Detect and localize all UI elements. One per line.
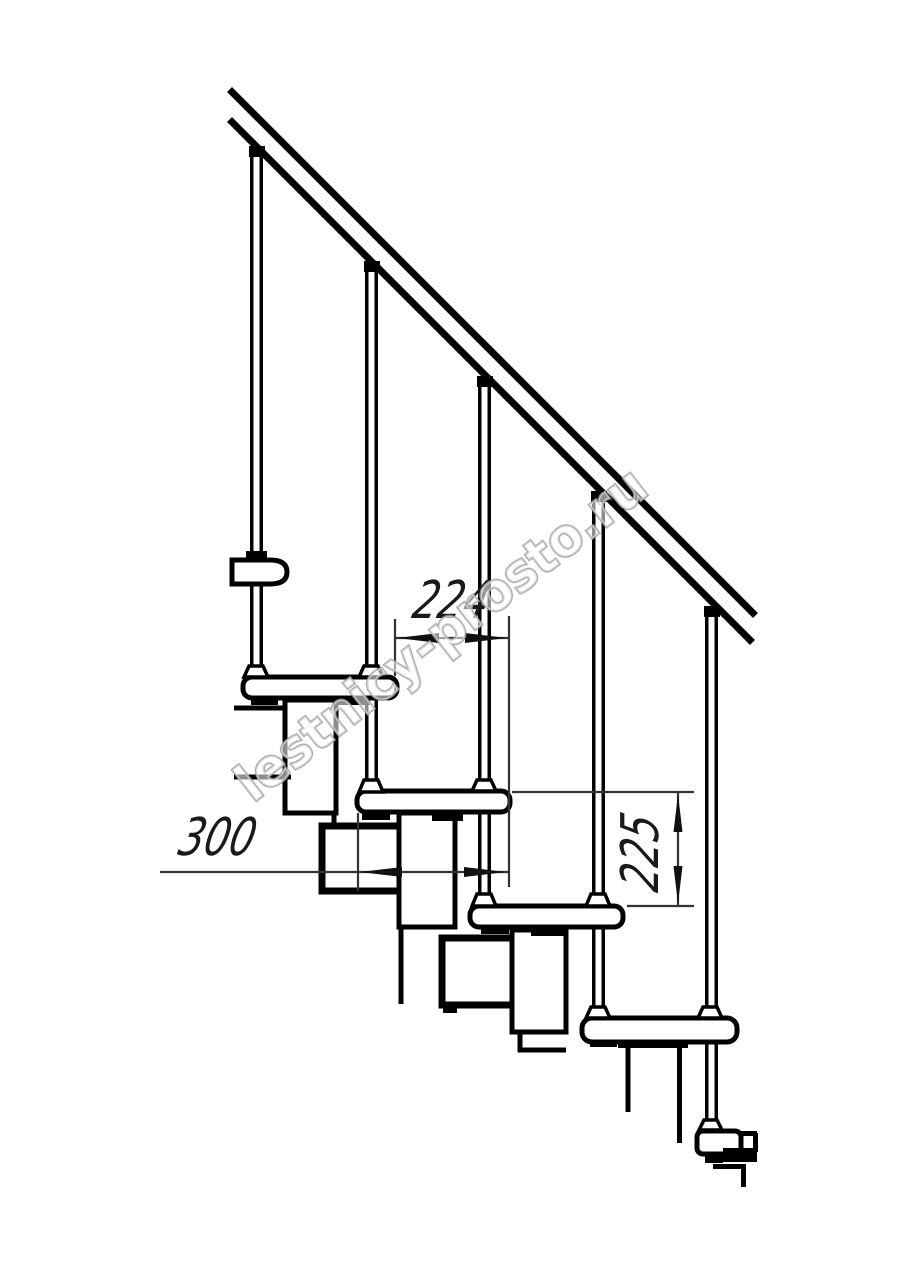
tab-t4-b <box>618 1041 688 1048</box>
arrow-225-top <box>674 794 683 832</box>
tab-t2-a <box>362 812 390 820</box>
tread-3 <box>470 906 623 927</box>
tab-t1-a <box>251 697 278 705</box>
baluster-5 <box>704 606 720 1126</box>
collar-b4-t4 <box>586 1007 610 1018</box>
tread-4 <box>582 1018 737 1042</box>
tab-t4-a <box>590 1040 617 1047</box>
module-box-3-foot <box>443 1004 457 1013</box>
collar-b3-t3 <box>472 894 496 906</box>
block-black-bar <box>723 1148 757 1162</box>
wall-bracket <box>232 551 287 584</box>
bottom-support-block <box>697 1131 757 1187</box>
arrow-300-right <box>464 867 506 877</box>
staircase-drawing: 224 300 225 lestnicy-prosto.ru <box>0 0 914 1280</box>
bracket-body <box>232 560 287 584</box>
collar-b5-t4 <box>698 1007 722 1018</box>
collar-b2-t2 <box>359 780 383 792</box>
module-neck-3 <box>512 930 566 1032</box>
tread-2 <box>357 791 510 812</box>
tab-t2-b <box>432 814 463 821</box>
module-box-3 <box>442 938 517 1005</box>
module-neck-2 <box>399 813 455 927</box>
dim-label-tread-depth: 300 <box>174 808 263 868</box>
baluster-4 <box>591 491 607 1012</box>
block-foot-tab <box>705 1154 723 1163</box>
dim-label-step-rise: 225 <box>611 808 671 897</box>
collar-b3-t2 <box>472 780 496 791</box>
collar-b1-t1 <box>244 666 268 677</box>
technical-drawing-canvas: 224 300 225 lestnicy-prosto.ru <box>0 0 914 1280</box>
tab-t3-b <box>531 928 564 936</box>
baluster-1 <box>249 146 265 672</box>
arrow-225-bottom <box>674 866 683 904</box>
collar-b4-t3 <box>586 894 610 906</box>
handrail-top-edge <box>232 92 753 613</box>
tab-t3-a <box>481 926 509 934</box>
module-box-2 <box>322 826 400 891</box>
